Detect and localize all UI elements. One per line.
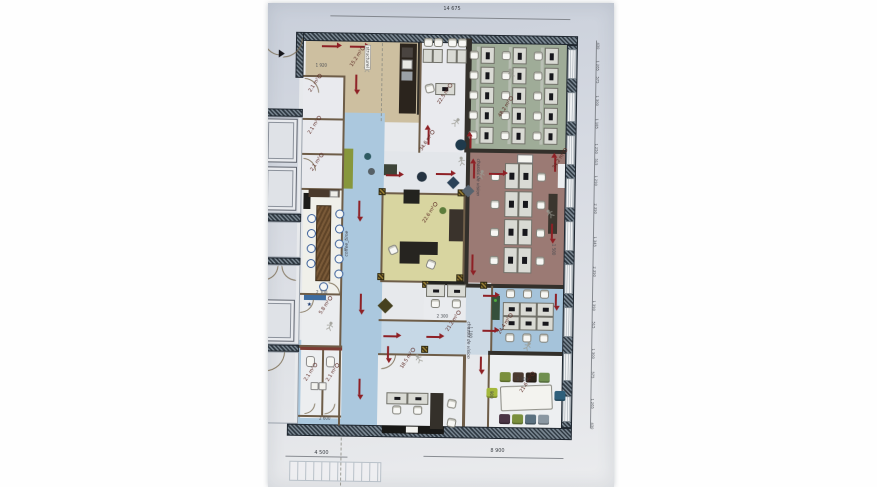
escape-route-arrow <box>383 335 396 337</box>
office-chair <box>523 289 532 298</box>
desk <box>447 284 466 297</box>
desk <box>503 247 517 273</box>
wall-accent <box>300 347 342 351</box>
office-chair <box>505 333 514 342</box>
monitor <box>542 322 548 326</box>
window <box>565 178 574 208</box>
chair <box>307 244 316 253</box>
chair <box>334 269 343 278</box>
dimension-label: 1 920 <box>316 63 328 68</box>
office-chair <box>447 399 458 410</box>
credenza <box>449 209 464 241</box>
arrow-head <box>467 132 473 137</box>
office-chair <box>534 52 543 61</box>
desk <box>519 163 533 189</box>
desk <box>545 48 559 65</box>
monitor <box>486 52 490 59</box>
monitor <box>484 132 488 139</box>
window <box>567 92 576 122</box>
office-chair <box>458 38 467 47</box>
chair <box>335 239 344 248</box>
arrow-head <box>549 238 555 243</box>
indicator-light <box>494 299 497 302</box>
plant <box>439 207 446 214</box>
column <box>377 273 384 280</box>
office-chair <box>434 38 443 47</box>
elevator-shaft <box>268 118 298 163</box>
desk <box>480 87 494 104</box>
monitor <box>549 93 553 100</box>
bench <box>344 149 354 189</box>
desk <box>512 87 526 104</box>
arrow-head <box>553 305 559 310</box>
dimension-bottom-left: 4 500 <box>314 450 328 456</box>
round-table <box>455 139 466 150</box>
dimension-line <box>330 15 570 19</box>
monitor <box>508 307 514 311</box>
monitor <box>525 321 531 325</box>
monitor <box>518 52 522 59</box>
star-marker: ★ <box>307 301 312 307</box>
annex-room <box>268 221 301 258</box>
desk <box>537 303 554 317</box>
escape-route-arrow <box>480 357 482 370</box>
desk <box>536 317 553 331</box>
dimension-label: 2 300 <box>316 290 328 295</box>
arrow-head <box>358 309 364 314</box>
stairs-sketch <box>289 461 381 482</box>
escape-route-arrow <box>551 224 553 239</box>
office-chair <box>535 257 544 266</box>
desk <box>481 47 495 64</box>
escape-route-arrow <box>386 174 399 176</box>
monitor <box>517 112 521 119</box>
meeting-chair <box>512 414 523 424</box>
arrow-head <box>398 172 403 178</box>
arrow-head <box>450 171 455 177</box>
desk <box>423 49 433 63</box>
dimension-bottom-right: 8 900 <box>490 448 504 454</box>
column <box>480 282 487 289</box>
chair <box>307 214 316 223</box>
desk <box>386 392 407 404</box>
stool <box>364 153 371 160</box>
escape-route-arrow <box>359 379 361 395</box>
meeting-chair <box>538 415 549 425</box>
chair <box>335 209 344 218</box>
escape-route-arrow <box>426 336 439 338</box>
office-chair <box>506 289 515 298</box>
escape-route-arrow <box>482 330 494 332</box>
monitor <box>542 308 548 312</box>
arrow-head <box>336 43 341 49</box>
office-chair <box>489 256 498 265</box>
meeting-chair <box>539 373 550 383</box>
dimension-label: 1 100 <box>468 327 473 339</box>
window <box>567 49 576 79</box>
desk <box>504 191 518 217</box>
monitor <box>508 229 513 236</box>
desk <box>513 47 527 64</box>
elevator-shaft <box>268 166 297 211</box>
office-chair <box>502 51 511 60</box>
chair <box>334 254 343 263</box>
chair <box>335 224 344 233</box>
pouf-round <box>417 172 427 182</box>
monitor <box>485 92 489 99</box>
meeting-table <box>500 384 553 411</box>
office-chair <box>500 131 509 140</box>
desk <box>519 316 536 330</box>
monitor <box>522 229 527 236</box>
arrow-head <box>470 270 476 275</box>
window <box>564 264 573 294</box>
monitor <box>509 201 514 208</box>
arrow-head <box>439 333 444 339</box>
dimension-line <box>423 456 563 459</box>
meeting-chair <box>525 414 536 424</box>
storage-box <box>403 189 419 203</box>
door-marker <box>279 50 285 58</box>
dimension-line <box>285 456 347 458</box>
elevator-shaft <box>268 299 295 342</box>
desk <box>480 107 494 124</box>
arrow-head <box>478 369 484 374</box>
printer-table <box>517 154 533 163</box>
escape-route-arrow <box>360 294 362 310</box>
washbasin <box>319 382 327 390</box>
arrow-head <box>354 89 360 94</box>
room-name-label: structurel <box>364 45 370 70</box>
monitor <box>549 73 553 80</box>
page-background: 15.2 m²22.5 m²48.2 m²34.6 m²34.2 m²22.6 … <box>0 0 877 487</box>
desk <box>543 128 557 145</box>
window <box>563 353 572 381</box>
arrow-head <box>494 292 499 298</box>
monitor <box>523 201 528 208</box>
office-chair <box>539 334 548 343</box>
escape-route-arrow <box>555 294 557 306</box>
desk <box>518 191 532 217</box>
office-chair <box>532 132 541 141</box>
escape-route-arrow <box>483 295 495 297</box>
floorplan-drawing: 15.2 m²22.5 m²48.2 m²34.6 m²34.2 m²22.6 … <box>268 3 614 487</box>
dimension-label: 2 600 <box>319 416 331 421</box>
window <box>565 221 574 251</box>
executive-desk <box>400 241 438 255</box>
meeting-chair <box>554 391 565 401</box>
office-chair <box>448 38 457 47</box>
desk <box>447 49 457 63</box>
monitor <box>485 112 489 119</box>
monitor <box>525 307 531 311</box>
monitor <box>394 397 400 400</box>
window <box>563 307 572 337</box>
monitor <box>523 173 528 180</box>
office-chair <box>490 200 499 209</box>
desk <box>544 68 558 85</box>
monitor <box>415 397 421 400</box>
washbasin <box>311 382 319 390</box>
desk <box>520 302 537 316</box>
office-chair <box>469 111 478 120</box>
coffee-machine <box>330 190 339 197</box>
office-chair <box>424 38 433 47</box>
escape-route-arrow <box>489 173 503 175</box>
office-chair <box>413 406 422 415</box>
office-chair <box>533 72 542 81</box>
monitor <box>516 132 520 139</box>
desk <box>544 108 558 125</box>
monitor <box>508 257 513 264</box>
appliance <box>401 71 412 80</box>
stool <box>368 168 375 175</box>
arrow-head <box>396 333 401 339</box>
desk <box>544 88 558 105</box>
office-chair <box>470 51 479 60</box>
desk <box>517 247 531 273</box>
kitchen-sink <box>402 59 413 69</box>
meeting-chair <box>499 414 510 424</box>
desk <box>511 127 525 144</box>
monitor <box>550 53 554 60</box>
arrow-head <box>357 216 363 221</box>
desk <box>457 49 467 63</box>
escape-route-arrow <box>472 254 474 270</box>
escape-route-arrow <box>469 136 471 148</box>
desk <box>512 107 526 124</box>
desk <box>504 219 518 245</box>
office-chair <box>431 299 440 308</box>
monitor <box>433 289 439 292</box>
office-chair <box>469 71 478 80</box>
escape-route-arrow <box>322 45 337 47</box>
monitor <box>548 133 552 140</box>
office-chair <box>392 405 401 414</box>
desk <box>480 67 494 84</box>
desk <box>479 127 493 144</box>
office-chair <box>469 91 478 100</box>
monitor <box>522 257 527 264</box>
chair <box>306 259 315 268</box>
monitor <box>517 92 521 99</box>
escape-route-arrow <box>355 75 357 90</box>
floorplan-photo: 15.2 m²22.5 m²48.2 m²34.6 m²34.2 m²22.6 … <box>268 3 614 487</box>
monitor <box>549 113 553 120</box>
meeting-chair <box>500 372 511 382</box>
desk <box>433 49 443 63</box>
office-chair <box>490 228 499 237</box>
white-box <box>406 427 418 433</box>
office-chair <box>540 290 549 299</box>
office-chair <box>536 229 545 238</box>
escape-route-arrow <box>436 173 451 175</box>
office-chair <box>446 418 457 429</box>
dimension-total-width: 14 675 <box>443 6 460 12</box>
dimension-label: 900 <box>489 391 494 399</box>
arrow-head <box>502 170 507 176</box>
arrow-head <box>357 394 363 399</box>
column <box>421 346 428 353</box>
escape-route-arrow <box>358 201 360 217</box>
coffee-table <box>315 205 331 281</box>
monitor <box>454 289 460 292</box>
monitor <box>485 72 489 79</box>
office-chair <box>533 92 542 101</box>
window-sill <box>558 164 565 188</box>
dimension-label: 2 300 <box>517 377 529 382</box>
executive-desk-return <box>400 254 420 263</box>
column <box>379 188 386 195</box>
dimension-line <box>590 40 597 428</box>
chair <box>307 229 316 238</box>
cabinet <box>430 393 444 429</box>
desk <box>518 219 532 245</box>
dimension-label: 1 500 <box>551 244 556 256</box>
office-chair <box>537 173 546 182</box>
office-chair <box>533 112 542 121</box>
appliance <box>402 47 413 57</box>
room-name-label: chassis de vision <box>476 159 482 196</box>
desk <box>407 393 428 405</box>
office-chair <box>452 299 461 308</box>
room-name-label: coffee_time <box>344 231 349 257</box>
desk <box>426 284 445 297</box>
monitor <box>509 173 514 180</box>
dimension-label: 2 300 <box>437 314 449 319</box>
